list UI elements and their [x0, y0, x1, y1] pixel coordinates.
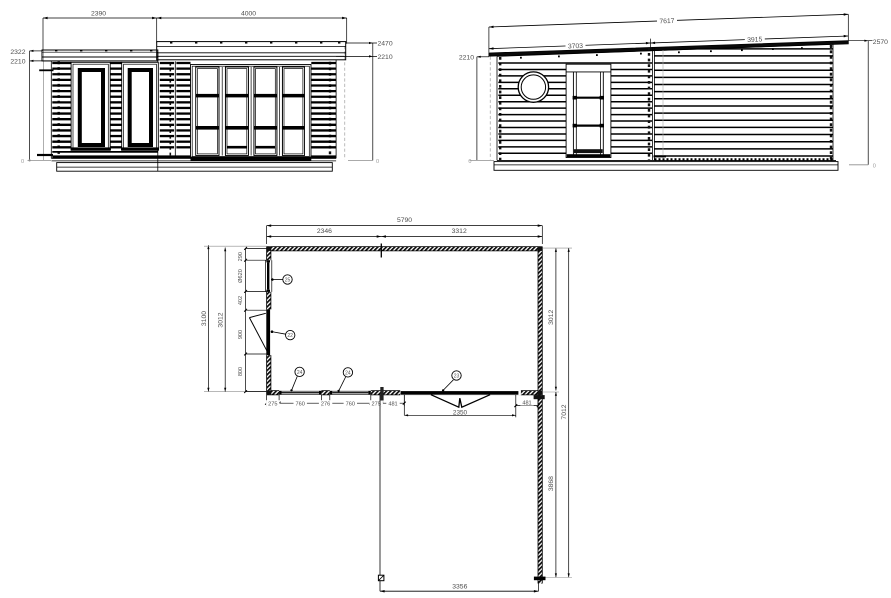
svg-text:7012: 7012 — [561, 404, 568, 419]
svg-text:276: 276 — [321, 401, 330, 407]
svg-text:3100: 3100 — [201, 311, 208, 326]
svg-text:290: 290 — [238, 252, 244, 261]
svg-text:481: 481 — [388, 401, 397, 407]
svg-text:2210: 2210 — [10, 59, 25, 66]
svg-text:3012: 3012 — [218, 312, 225, 327]
svg-text:3868: 3868 — [548, 476, 555, 491]
svg-text:2390: 2390 — [91, 11, 106, 18]
svg-text:760: 760 — [346, 401, 355, 407]
svg-text:800: 800 — [238, 367, 244, 376]
svg-text:0: 0 — [21, 159, 24, 165]
svg-text:2470: 2470 — [378, 41, 393, 48]
svg-text:3312: 3312 — [452, 228, 467, 235]
svg-text:0: 0 — [468, 159, 471, 165]
svg-text:24: 24 — [297, 370, 303, 376]
svg-text:275: 275 — [372, 401, 381, 407]
svg-text:275: 275 — [268, 401, 277, 407]
svg-text:481: 481 — [522, 401, 531, 407]
svg-text:24: 24 — [345, 370, 351, 376]
svg-text:402: 402 — [238, 296, 244, 305]
svg-text:2350: 2350 — [453, 410, 468, 417]
svg-text:900: 900 — [238, 330, 244, 339]
svg-text:3356: 3356 — [452, 584, 467, 591]
svg-text:3012: 3012 — [548, 310, 555, 325]
svg-text:0: 0 — [873, 163, 876, 169]
svg-text:22: 22 — [287, 333, 293, 339]
svg-text:3915: 3915 — [747, 36, 763, 44]
svg-text:760: 760 — [296, 401, 305, 407]
svg-text:2322: 2322 — [10, 49, 25, 56]
svg-text:2210: 2210 — [459, 54, 474, 61]
svg-text:5790: 5790 — [397, 217, 412, 224]
svg-text:4000: 4000 — [241, 11, 256, 18]
svg-text:2346: 2346 — [317, 228, 332, 235]
svg-text:0: 0 — [376, 159, 379, 165]
svg-text:2210: 2210 — [378, 54, 393, 61]
svg-text:25: 25 — [285, 278, 291, 284]
svg-text:23: 23 — [454, 373, 460, 379]
svg-text:2570: 2570 — [873, 39, 888, 46]
svg-text:Ø620: Ø620 — [238, 269, 244, 283]
svg-text:3703: 3703 — [568, 43, 584, 51]
svg-text:7617: 7617 — [659, 18, 675, 26]
